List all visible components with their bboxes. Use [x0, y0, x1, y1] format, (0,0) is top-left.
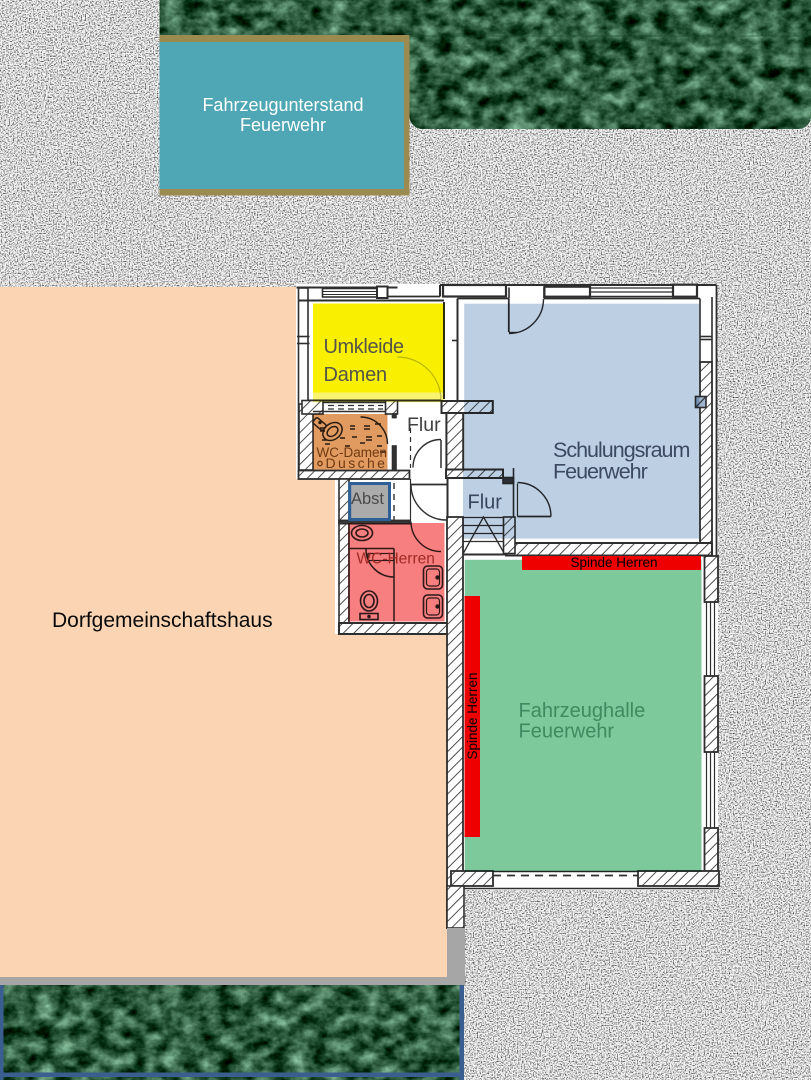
svg-text:Dorfgemeinschaftshaus: Dorfgemeinschaftshaus	[52, 609, 273, 632]
svg-text:WC-Herren: WC-Herren	[357, 551, 435, 568]
svg-text:Umkleide: Umkleide	[324, 336, 404, 358]
svg-text:Schulungsraum: Schulungsraum	[553, 438, 689, 462]
svg-text:Feuerwehr: Feuerwehr	[240, 115, 326, 135]
svg-text:Dusche: Dusche	[326, 455, 388, 471]
svg-text:Abst: Abst	[351, 490, 384, 508]
svg-text:Feuerwehr: Feuerwehr	[519, 721, 615, 743]
svg-text:Spinde Herren: Spinde Herren	[570, 555, 657, 570]
svg-text:Damen: Damen	[324, 364, 387, 386]
svg-text:Flur: Flur	[407, 414, 441, 436]
svg-text:Spinde Herren: Spinde Herren	[465, 672, 480, 759]
svg-text:Fahrzeughalle: Fahrzeughalle	[519, 700, 646, 722]
svg-text:Feuerwehr: Feuerwehr	[553, 460, 648, 484]
svg-text:Fahrzeugunterstand: Fahrzeugunterstand	[202, 95, 363, 115]
svg-text:Flur: Flur	[468, 492, 503, 514]
